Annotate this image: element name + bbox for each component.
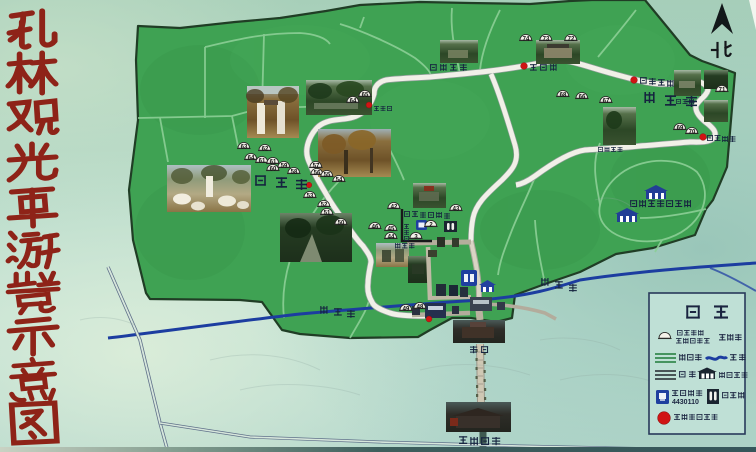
svg-text:72: 72: [568, 36, 575, 42]
svg-text:46: 46: [372, 224, 379, 230]
svg-text:62: 62: [262, 146, 269, 152]
svg-text:58: 58: [291, 169, 298, 175]
svg-text:4430110: 4430110: [672, 399, 699, 406]
svg-text:65: 65: [362, 92, 369, 98]
svg-text:56: 56: [314, 170, 321, 176]
svg-text:53: 53: [307, 193, 314, 199]
svg-text:55: 55: [324, 172, 331, 178]
svg-text:44: 44: [388, 234, 395, 240]
svg-text:60: 60: [270, 166, 277, 172]
svg-text:45: 45: [388, 226, 395, 232]
svg-text:59: 59: [281, 163, 288, 169]
svg-text:54: 54: [336, 177, 343, 183]
svg-text:67: 67: [603, 98, 610, 104]
svg-text:66: 66: [579, 94, 586, 100]
svg-text:49: 49: [403, 306, 410, 312]
svg-text:42: 42: [391, 204, 398, 210]
svg-text:70: 70: [689, 129, 696, 135]
svg-text:69: 69: [677, 125, 684, 131]
svg-text:61: 61: [259, 158, 266, 164]
svg-text:43: 43: [453, 206, 460, 212]
svg-text:68: 68: [560, 92, 567, 98]
svg-text:71: 71: [719, 87, 726, 93]
svg-text:51: 51: [324, 210, 331, 216]
svg-text:74: 74: [523, 36, 530, 42]
svg-text:73: 73: [543, 36, 550, 42]
svg-text:64: 64: [350, 98, 357, 104]
svg-text:48: 48: [417, 304, 424, 310]
svg-text:63: 63: [241, 144, 248, 150]
svg-text:52: 52: [321, 202, 328, 208]
svg-text:50: 50: [338, 220, 345, 226]
svg-text:64: 64: [248, 155, 255, 161]
